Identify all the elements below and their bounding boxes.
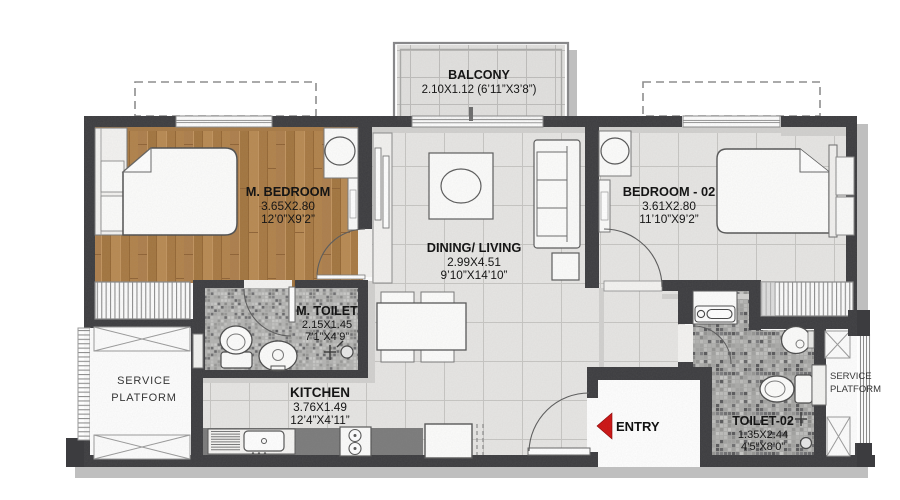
svg-text:3.65X2.80: 3.65X2.80: [261, 199, 315, 213]
svg-text:9’10”X14’10”: 9’10”X14’10”: [441, 268, 508, 282]
svg-text:3.76X1.49: 3.76X1.49: [293, 400, 347, 414]
svg-text:BALCONY: BALCONY: [448, 68, 510, 82]
svg-text:2.99X4.51: 2.99X4.51: [447, 255, 501, 269]
svg-text:3.61X2.80: 3.61X2.80: [642, 199, 696, 213]
svg-text:12’4”X4’11”: 12’4”X4’11”: [290, 413, 350, 427]
svg-text:M. TOILET: M. TOILET: [296, 304, 358, 318]
svg-text:1.35X2.44: 1.35X2.44: [738, 429, 788, 441]
svg-text:ENTRY: ENTRY: [616, 419, 660, 434]
svg-text:7’1”X4’9”: 7’1”X4’9”: [305, 331, 349, 343]
svg-text:TOILET-02: TOILET-02: [732, 414, 794, 428]
svg-text:2.15X1.45: 2.15X1.45: [302, 319, 352, 331]
svg-text:12’0”X9’2”: 12’0”X9’2”: [261, 212, 315, 226]
svg-text:DINING/ LIVING: DINING/ LIVING: [427, 240, 522, 255]
svg-text:M. BEDROOM: M. BEDROOM: [246, 184, 331, 199]
svg-text:BEDROOM - 02: BEDROOM - 02: [623, 184, 715, 199]
svg-text:4’5”X8’0”: 4’5”X8’0”: [741, 441, 785, 453]
svg-text:2.10X1.12 (6’11”X3’8”): 2.10X1.12 (6’11”X3’8”): [422, 84, 537, 96]
svg-text:KITCHEN: KITCHEN: [290, 385, 350, 400]
svg-text:11’10”X9’2”: 11’10”X9’2”: [639, 212, 699, 226]
